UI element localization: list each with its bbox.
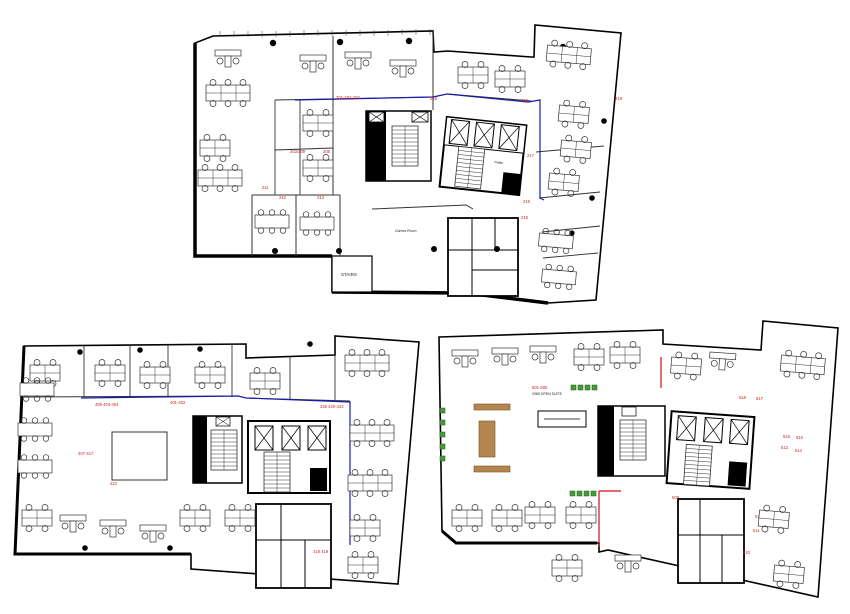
svg-text:2985 OPEN SUITE: 2985 OPEN SUITE <box>532 392 563 396</box>
svg-text:213: 213 <box>317 195 325 200</box>
svg-text:518: 518 <box>739 395 747 400</box>
svg-text:201-202-203: 201-202-203 <box>336 95 360 100</box>
svg-text:407-417: 407-417 <box>78 451 94 456</box>
svg-text:STAIRS: STAIRS <box>341 272 357 277</box>
svg-text:Games Room: Games Room <box>395 229 417 233</box>
svg-text:509: 509 <box>672 495 680 500</box>
svg-text:515: 515 <box>796 435 804 440</box>
svg-text:501-505: 501-505 <box>532 385 548 390</box>
svg-text:406 403-404: 406 403-404 <box>95 402 119 407</box>
svg-text:418 419: 418 419 <box>313 549 329 554</box>
svg-text:514: 514 <box>795 448 803 453</box>
svg-text:219: 219 <box>615 96 623 101</box>
svg-text:513: 513 <box>781 445 789 450</box>
svg-text:425 420-424: 425 420-424 <box>320 404 344 409</box>
svg-text:517: 517 <box>756 396 764 401</box>
svg-text:510: 510 <box>743 550 751 555</box>
svg-text:218: 218 <box>430 96 438 101</box>
svg-text:401-402: 401-402 <box>170 400 186 405</box>
svg-text:215: 215 <box>521 215 529 220</box>
svg-text:208: 208 <box>323 149 331 154</box>
svg-text:216: 216 <box>523 199 531 204</box>
svg-text:203/209: 203/209 <box>290 149 306 154</box>
svg-text:219: 219 <box>521 98 529 103</box>
svg-text:217: 217 <box>527 153 535 158</box>
svg-text:413: 413 <box>110 481 118 486</box>
svg-text:211: 211 <box>262 185 269 190</box>
svg-text:516: 516 <box>783 434 791 439</box>
svg-text:511: 511 <box>753 528 760 533</box>
svg-text:212: 212 <box>279 195 287 200</box>
